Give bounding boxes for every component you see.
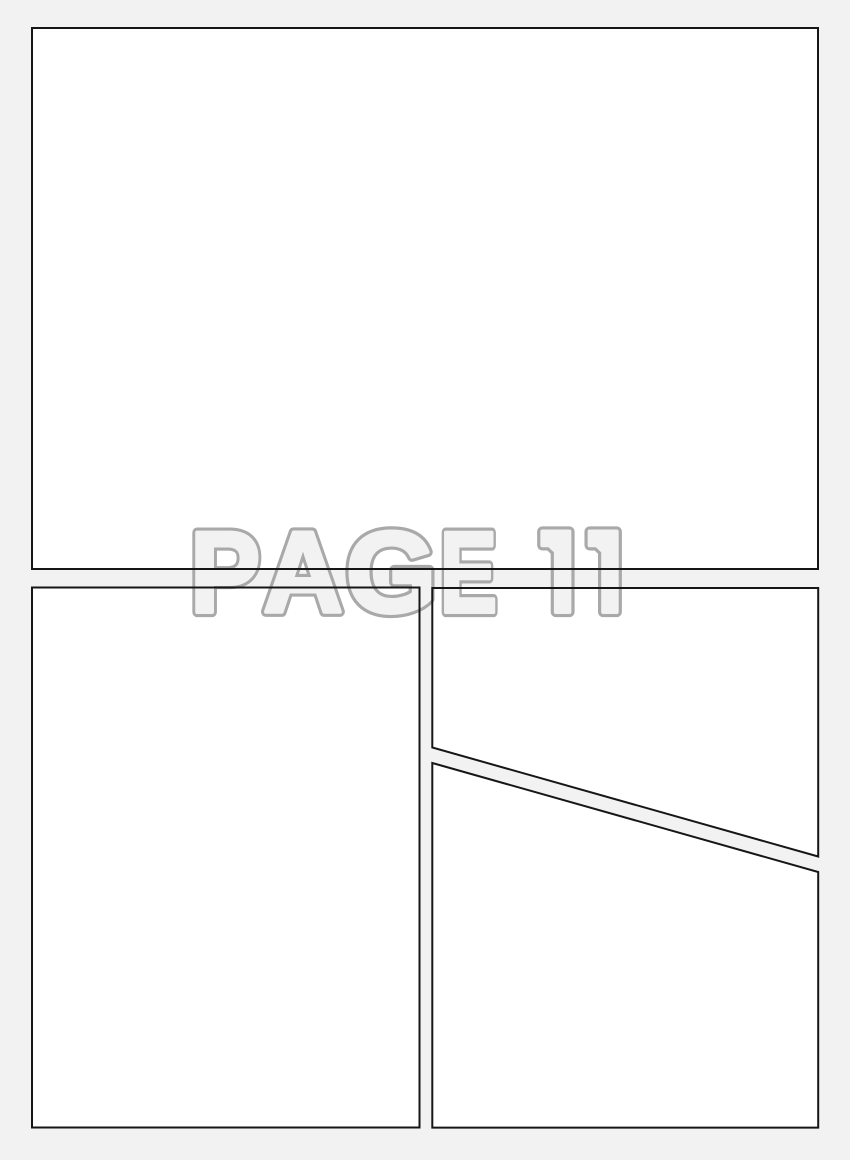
svg-text:E: E bbox=[440, 508, 497, 637]
svg-text:P: P bbox=[190, 509, 260, 637]
svg-text:A: A bbox=[263, 508, 343, 637]
svg-text:G: G bbox=[346, 508, 437, 637]
